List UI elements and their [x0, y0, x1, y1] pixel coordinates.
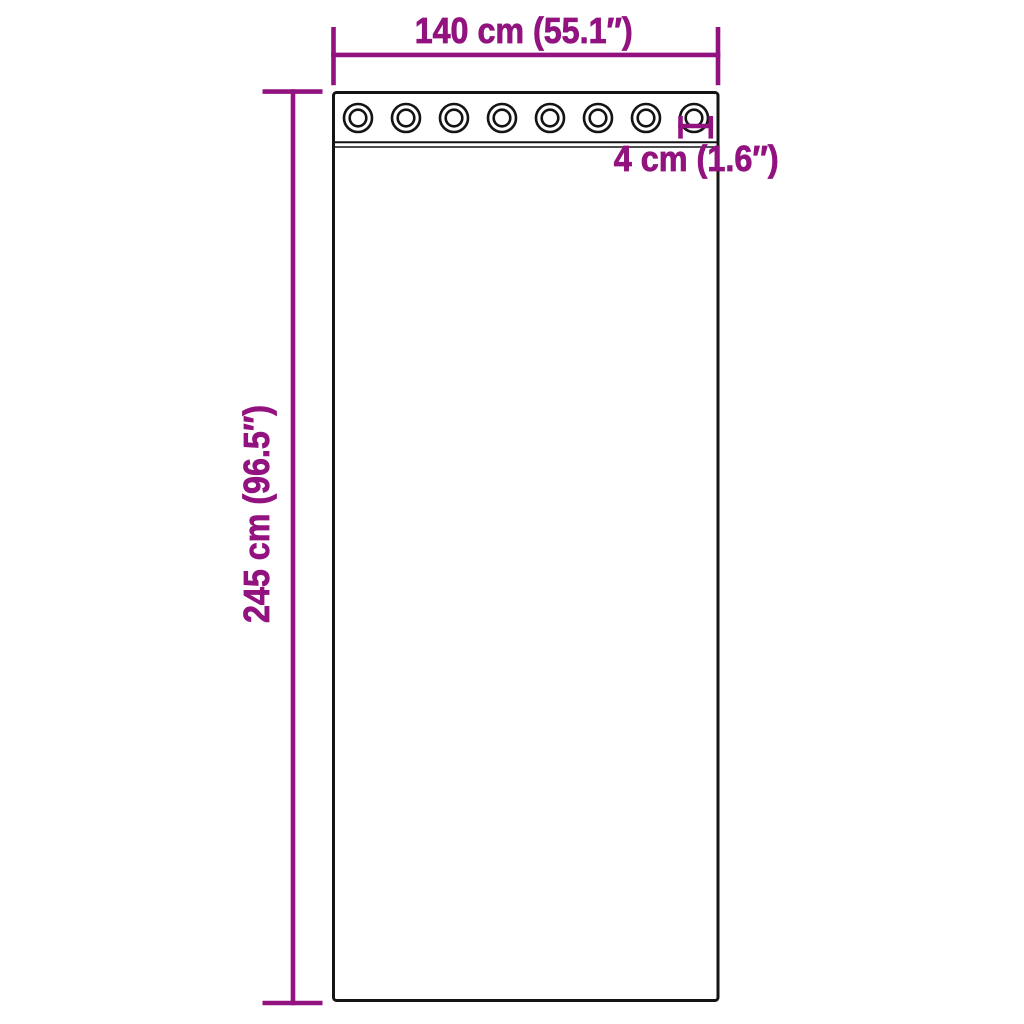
- svg-text:4 cm (1.6″): 4 cm (1.6″): [614, 138, 779, 179]
- svg-text:140 cm (55.1″): 140 cm (55.1″): [415, 10, 633, 51]
- svg-text:245 cm (96.5″): 245 cm (96.5″): [236, 405, 277, 623]
